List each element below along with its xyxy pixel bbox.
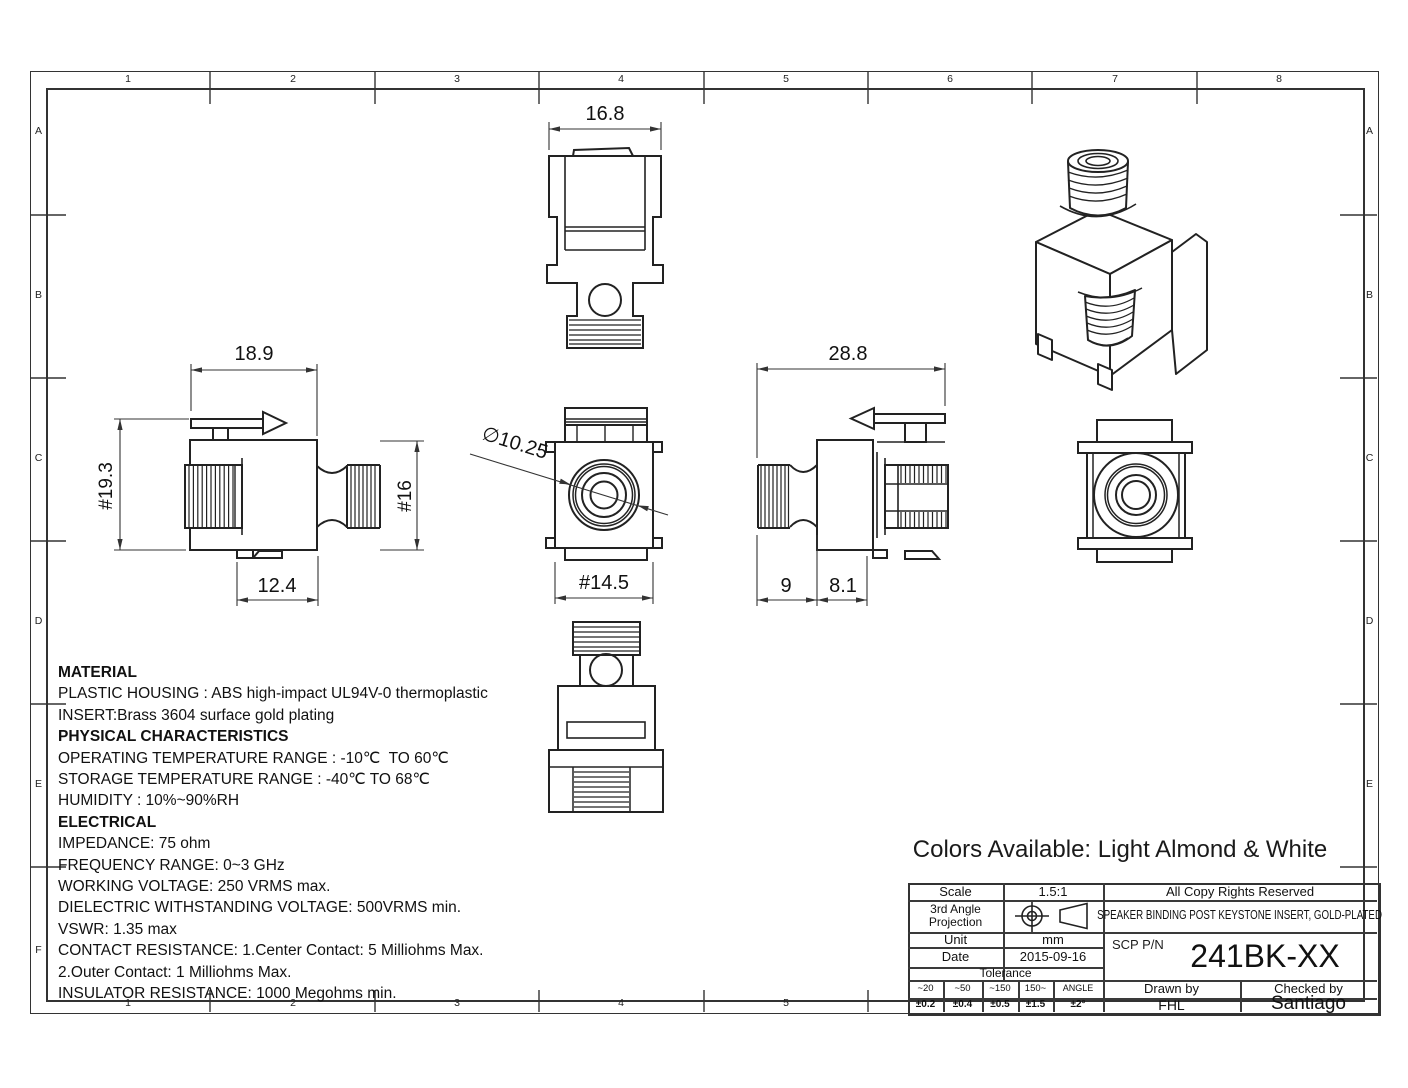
notes-line: WORKING VOLTAGE: 250 VRMS max. <box>58 876 558 897</box>
notes-line: ELECTRICAL <box>58 812 558 833</box>
dim-left-inner-height: #16 <box>395 480 416 512</box>
view-side-right <box>758 408 948 559</box>
view-top <box>547 148 663 348</box>
dim-front-width: #14.5 <box>579 572 629 594</box>
date-label: Date <box>908 947 1003 967</box>
drawing-title: SPEAKER BINDING POST KEYSTONE INSERT, GO… <box>1103 900 1377 932</box>
view-bottom <box>549 622 663 812</box>
pn-label: SCP P/N <box>1112 937 1164 952</box>
drawn-by-value: FHL <box>1103 998 1240 1012</box>
unit-label: Unit <box>908 932 1003 947</box>
notes-line: VSWR: 1.35 max <box>58 919 558 940</box>
notes-line: IMPEDANCE: 75 ohm <box>58 833 558 854</box>
view-rear <box>1078 420 1192 562</box>
notes-line: INSERT:Brass 3604 surface gold plating <box>58 705 558 726</box>
tolerance-header: ANGLE <box>1053 980 1103 998</box>
view-isometric <box>1036 150 1207 390</box>
tolerance-header: 150~ <box>1018 980 1053 998</box>
dim-left-width: 18.9 <box>235 343 274 365</box>
notes-line: MATERIAL <box>58 662 558 683</box>
engineering-drawing-sheet: 1 2 3 4 5 6 7 8 1 2 3 4 5 A B C D E F A … <box>0 0 1408 1088</box>
tolerance-header: ~150 <box>982 980 1018 998</box>
tolerance-value: ±0.2 <box>908 998 943 1012</box>
notes-line: PHYSICAL CHARACTERISTICS <box>58 726 558 747</box>
view-side-left <box>185 412 380 558</box>
date-value: 2015-09-16 <box>1003 947 1103 967</box>
dim-left-height: #19.3 <box>96 462 117 510</box>
drawn-by-label: Drawn by <box>1103 980 1240 998</box>
checked-by-value: Santiago <box>1240 996 1377 1012</box>
tolerance-label: Tolerance <box>908 967 1103 980</box>
dim-right-d1: 9 <box>780 575 791 597</box>
notes-line: INSULATOR RESISTANCE: 1000 Megohms min. <box>58 983 558 1004</box>
notes-line: PLASTIC HOUSING : ABS high-impact UL94V-… <box>58 683 558 704</box>
unit-value: mm <box>1003 932 1103 947</box>
tolerance-header: ~20 <box>908 980 943 998</box>
notes-line: OPERATING TEMPERATURE RANGE : -10℃ TO 60… <box>58 748 558 769</box>
part-number: 241BK-XX <box>1160 938 1370 975</box>
scale-label: Scale <box>908 883 1003 900</box>
projection-label: 3rd Angle Projection <box>908 900 1003 932</box>
tolerance-header: ~50 <box>943 980 982 998</box>
colors-available-note: Colors Available: Light Almond & White <box>900 836 1340 864</box>
notes-line: DIELECTRIC WITHSTANDING VOLTAGE: 500VRMS… <box>58 897 558 918</box>
dim-right-width: 28.8 <box>829 343 868 365</box>
scale-value: 1.5:1 <box>1003 883 1103 900</box>
notes-line: 2.Outer Contact: 1 Milliohms Max. <box>58 962 558 983</box>
dim-right-d2: 8.1 <box>829 575 857 597</box>
dim-front-diameter: ∅10.25 <box>479 423 550 464</box>
copyright-text: All Copy Rights Reserved <box>1103 883 1377 900</box>
notes-line: HUMIDITY : 10%~90%RH <box>58 790 558 811</box>
tolerance-value: ±0.4 <box>943 998 982 1012</box>
notes-line: CONTACT RESISTANCE: 1.Center Contact: 5 … <box>58 940 558 961</box>
notes-line: STORAGE TEMPERATURE RANGE : -40℃ TO 68℃ <box>58 769 558 790</box>
specification-notes: MATERIAL PLASTIC HOUSING : ABS high-impa… <box>58 662 558 1005</box>
tolerance-value: ±1.5 <box>1018 998 1053 1012</box>
notes-line: FREQUENCY RANGE: 0~3 GHz <box>58 855 558 876</box>
dim-top-width: 16.8 <box>586 103 625 125</box>
tolerance-value: ±2° <box>1053 998 1103 1012</box>
tolerance-value: ±0.5 <box>982 998 1018 1012</box>
dim-left-bottom: 12.4 <box>258 575 297 597</box>
